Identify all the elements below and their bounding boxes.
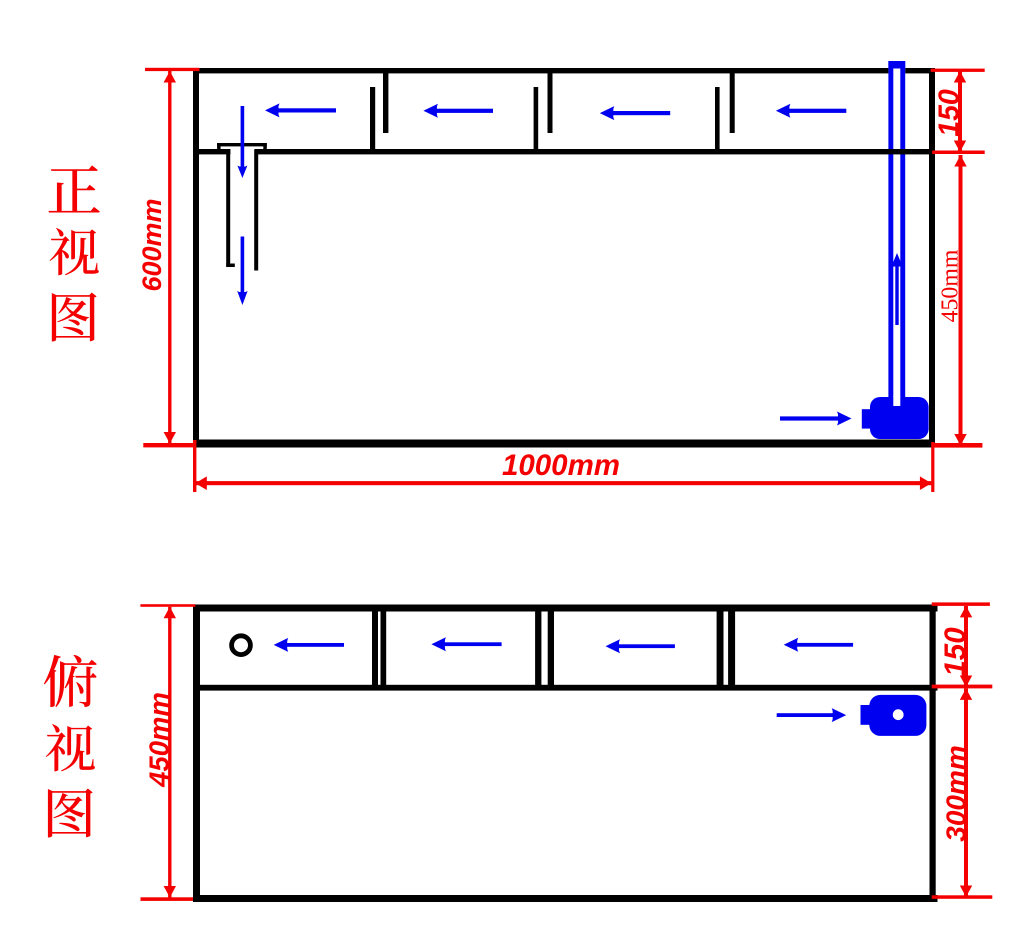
svg-text:1000mm: 1000mm — [502, 449, 620, 482]
svg-text:300mm: 300mm — [941, 745, 972, 842]
svg-text:450mm: 450mm — [144, 692, 175, 788]
svg-text:150: 150 — [939, 627, 972, 677]
svg-text:600mm: 600mm — [137, 198, 167, 291]
svg-text:150: 150 — [934, 89, 966, 137]
svg-text:450mm: 450mm — [938, 249, 964, 322]
